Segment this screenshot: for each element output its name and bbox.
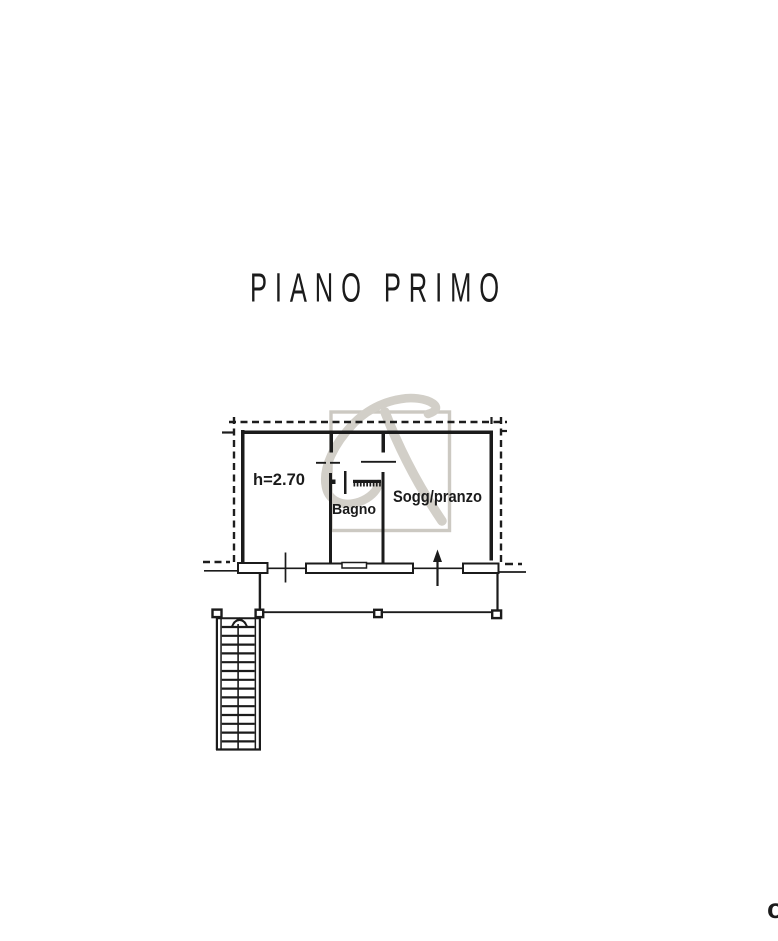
svg-text:Sogg/pranzo: Sogg/pranzo	[393, 487, 482, 506]
svg-text:o: o	[767, 893, 778, 924]
svg-text:PIANO PRIMO: PIANO PRIMO	[250, 265, 507, 311]
svg-text:Bagno: Bagno	[332, 502, 376, 518]
svg-text:h=2.70: h=2.70	[253, 470, 305, 489]
